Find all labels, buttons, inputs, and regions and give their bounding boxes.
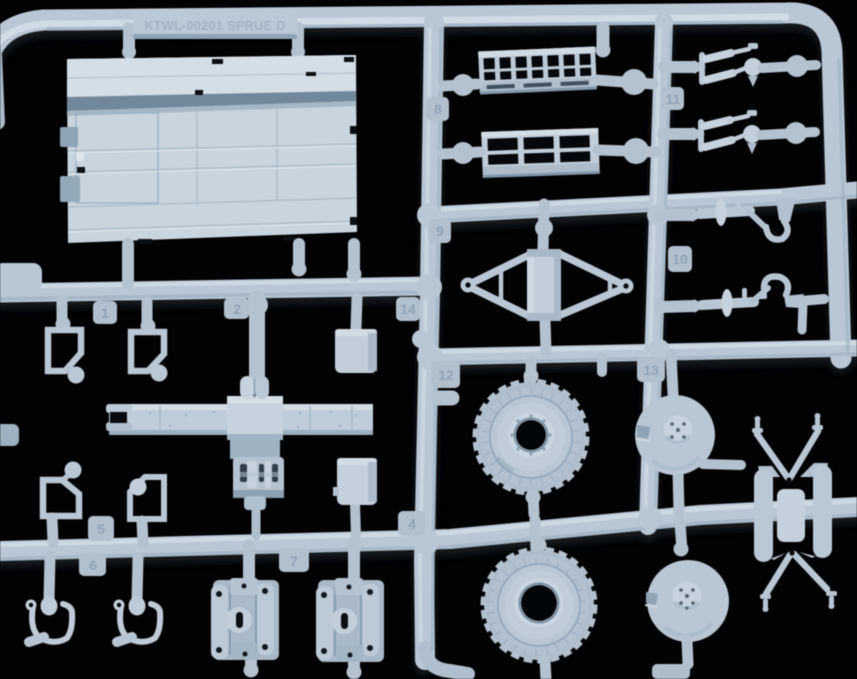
svg-text:1: 1 bbox=[101, 305, 109, 321]
svg-text:13: 13 bbox=[643, 362, 659, 378]
svg-text:7: 7 bbox=[290, 553, 298, 569]
svg-text:11: 11 bbox=[666, 91, 681, 107]
svg-text:9: 9 bbox=[436, 223, 444, 239]
svg-text:2: 2 bbox=[233, 301, 241, 317]
svg-text:14: 14 bbox=[400, 301, 416, 317]
svg-text:10: 10 bbox=[672, 251, 688, 267]
svg-text:12: 12 bbox=[438, 367, 454, 383]
svg-text:5: 5 bbox=[97, 521, 105, 537]
svg-text:4: 4 bbox=[408, 516, 416, 532]
svg-text:KTWL-00201 SPRUE D: KTWL-00201 SPRUE D bbox=[144, 19, 285, 33]
svg-text:8: 8 bbox=[434, 101, 442, 117]
svg-text:6: 6 bbox=[89, 557, 97, 573]
